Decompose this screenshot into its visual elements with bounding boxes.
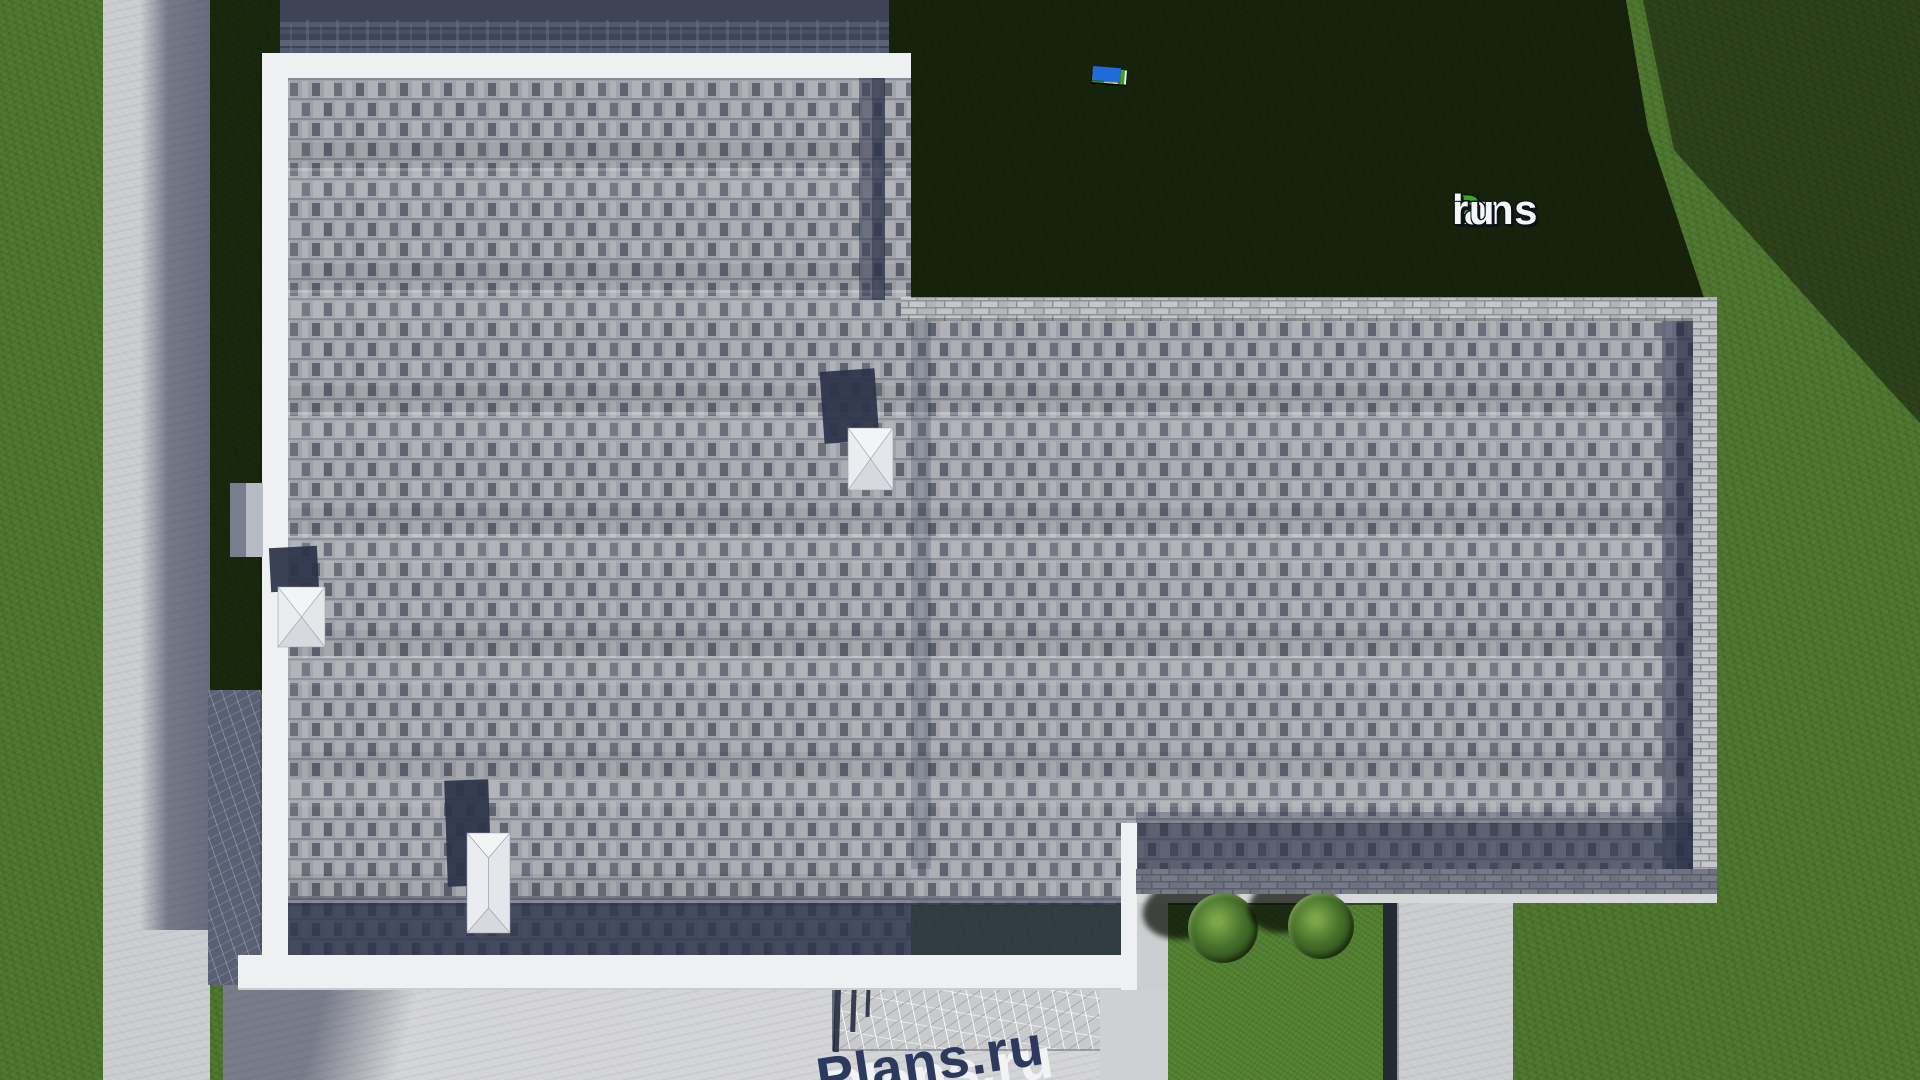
bush (1288, 893, 1354, 959)
shaded-side-walkway (208, 690, 262, 985)
bush (1188, 893, 1258, 963)
logo-part: ru (1452, 186, 1495, 234)
concrete-path-shadow (140, 0, 210, 930)
patio-shadow (223, 985, 473, 1080)
logo-3d-block (1092, 66, 1121, 82)
render-viewport: FixPlans.ru Plans.ru Plans.ru (0, 0, 1920, 1080)
